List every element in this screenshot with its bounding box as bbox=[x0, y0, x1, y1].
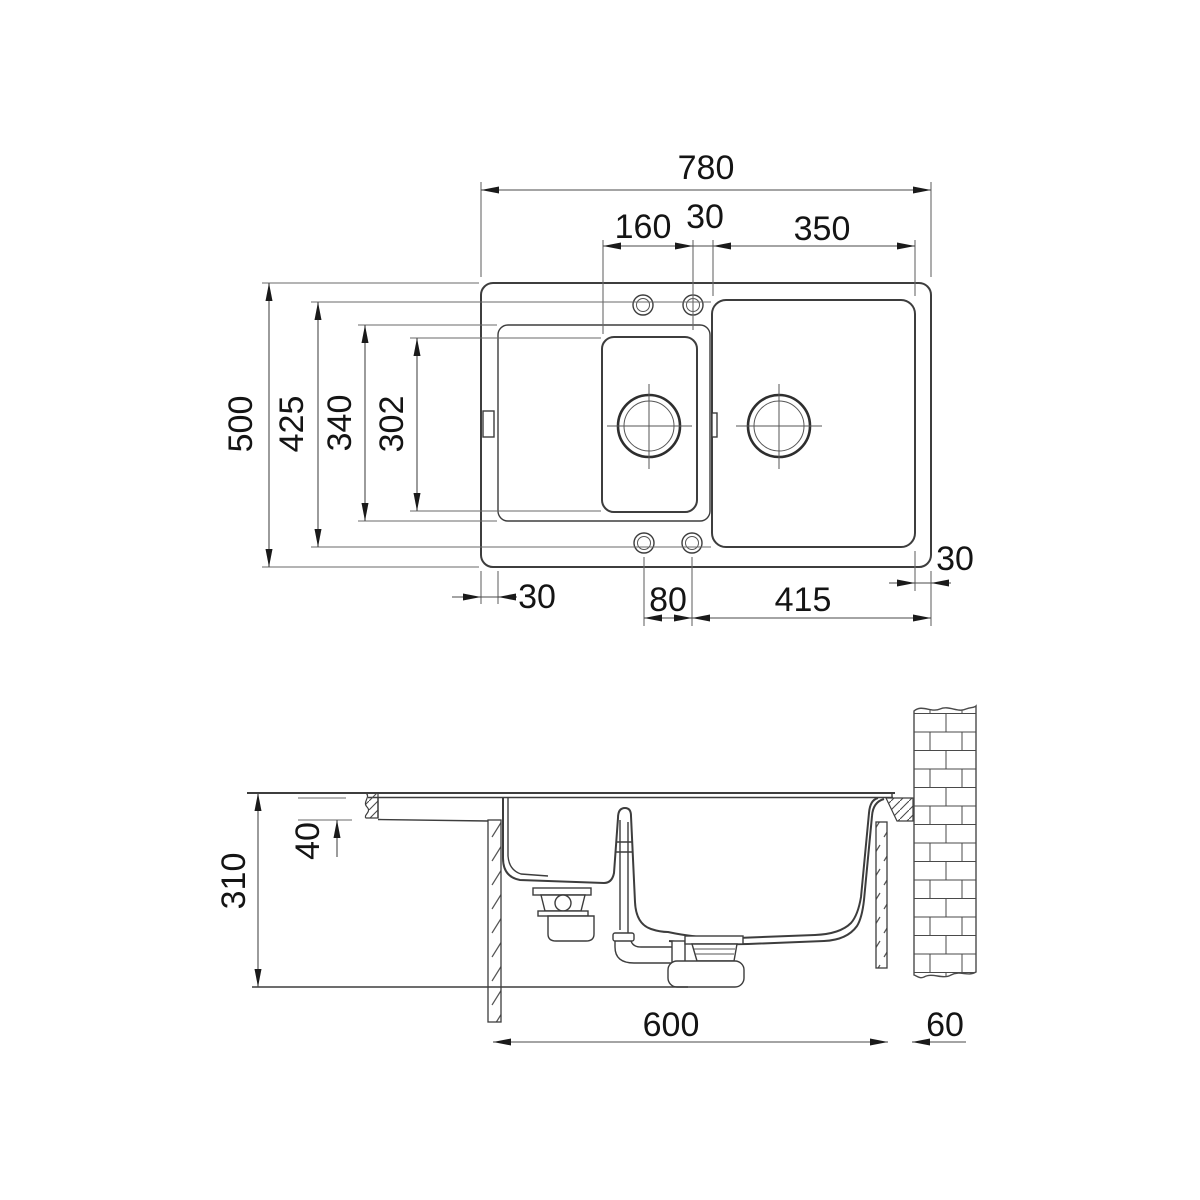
dim-left-margin: 30 bbox=[518, 578, 556, 616]
countertop-cut-block bbox=[365, 793, 378, 818]
dim-small-bowl-depth: 302 bbox=[373, 396, 411, 453]
dim-main-bowl-width: 350 bbox=[794, 210, 851, 248]
main-bowl bbox=[712, 300, 915, 547]
section-view bbox=[247, 706, 976, 1022]
wall-bracket bbox=[886, 798, 913, 821]
top-view bbox=[481, 283, 931, 567]
dim-tap-gap: 30 bbox=[686, 198, 724, 236]
dim-total-depth: 310 bbox=[215, 853, 253, 910]
overflow-slot-bowl bbox=[712, 413, 717, 437]
overflow-slot-left bbox=[483, 411, 494, 437]
dim-hole-spacing: 80 bbox=[649, 581, 687, 619]
dim-overall-depth: 500 bbox=[222, 396, 260, 453]
dim-overall-width: 780 bbox=[678, 149, 735, 187]
dim-main-bowl-depth: 425 bbox=[273, 396, 311, 453]
small-bowl-waste bbox=[533, 888, 594, 941]
dim-cabinet-width: 600 bbox=[643, 1006, 700, 1044]
dim-tap-ledge-width: 160 bbox=[615, 208, 672, 246]
drawing-canvas: 780 160 30 350 500 425 340 302 30 80 415… bbox=[0, 0, 1200, 1200]
cabinet-panel-left bbox=[488, 820, 501, 1022]
dim-right-margin: 30 bbox=[936, 540, 974, 578]
dim-wall-clearance: 60 bbox=[926, 1006, 964, 1044]
cabinet-panel-right bbox=[876, 822, 887, 968]
divider-overflow-channel bbox=[613, 820, 685, 965]
sink-technical-drawing: 780 160 30 350 500 425 340 302 30 80 415… bbox=[0, 0, 1200, 1200]
dim-rim-drop: 40 bbox=[289, 822, 327, 860]
dim-drainboard-depth: 340 bbox=[321, 395, 359, 452]
brick-wall bbox=[914, 706, 976, 978]
dim-hole-to-edge: 415 bbox=[775, 581, 832, 619]
